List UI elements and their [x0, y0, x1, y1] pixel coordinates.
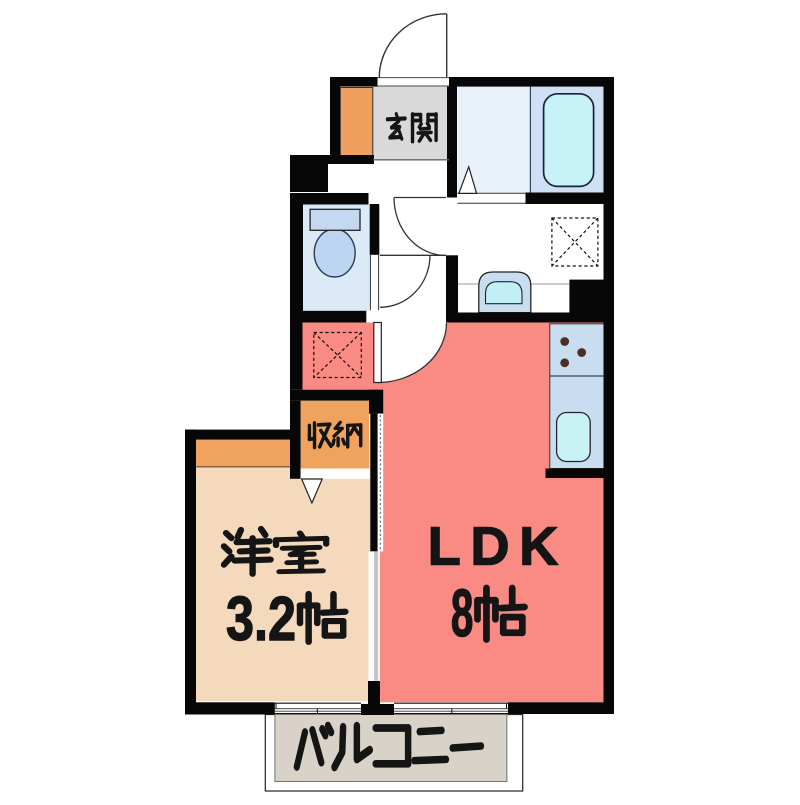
- svg-text:8: 8: [451, 576, 474, 651]
- svg-text:3.2: 3.2: [226, 585, 296, 654]
- svg-text:LDK: LDK: [428, 517, 558, 577]
